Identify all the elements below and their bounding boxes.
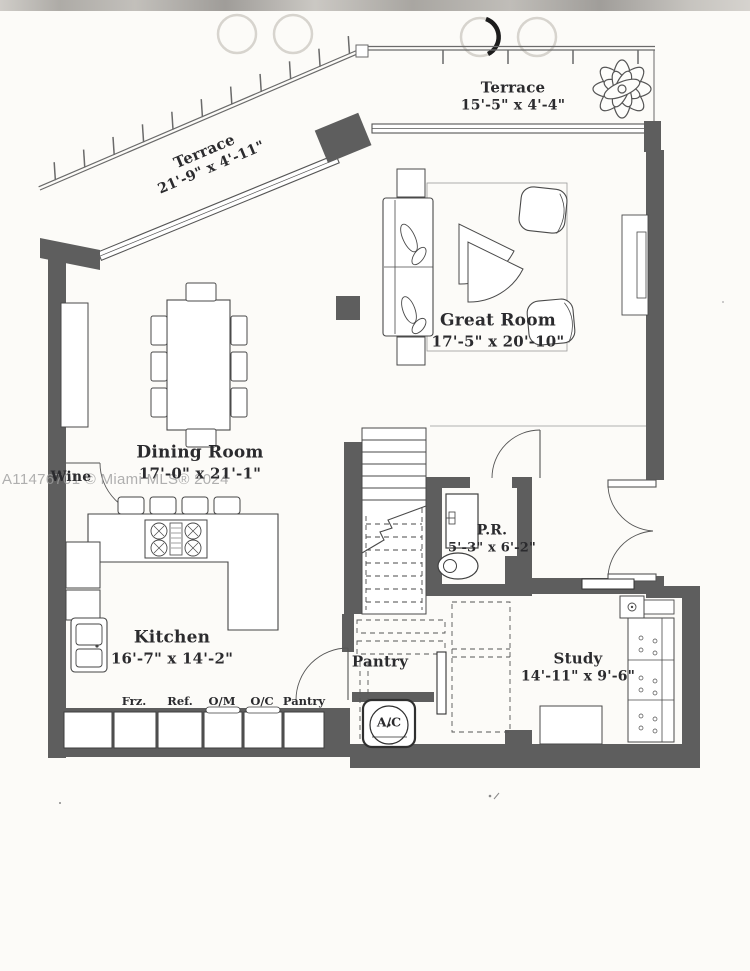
chair (151, 352, 167, 381)
wine-label: Wine (51, 469, 92, 487)
room-name: P.R. (448, 523, 536, 541)
chair (231, 388, 247, 417)
ac-label: A/C (377, 715, 401, 730)
chair (151, 388, 167, 417)
chair (186, 283, 216, 301)
window-walls (98, 124, 646, 260)
oven-microwave-label: O/M (209, 694, 236, 708)
pantry-cabinet-label: Pantry (283, 694, 325, 708)
room-name: Dining Room (136, 443, 263, 465)
staircase (362, 428, 426, 614)
room-name: Kitchen (111, 628, 233, 650)
buffet (61, 303, 88, 427)
end-table (397, 169, 425, 197)
room-dims: 17'-5" x 20'-10" (432, 332, 565, 351)
bar-stool (118, 497, 144, 514)
refrigerator-label: Ref. (167, 694, 192, 708)
room-dims: 17'-0" x 21'-1" (136, 464, 263, 483)
closet-door-leaf (437, 652, 446, 714)
oven-convection-label: O/C (250, 694, 273, 708)
great-room-label: Great Room 17'-5" x 20'-10" (432, 311, 565, 352)
end-table (397, 337, 425, 365)
chair (231, 316, 247, 345)
room-dims: 16'-7" x 14'-2" (111, 649, 233, 668)
dining-table (167, 300, 230, 430)
terrace-top-label: Terrace 15'-5" x 4'-4" (461, 78, 565, 115)
bar-stool (182, 497, 208, 514)
counter (66, 590, 100, 620)
counter (66, 542, 100, 588)
kitchen-label: Kitchen 16'-7" x 14'-2" (111, 628, 233, 669)
bar-stool (150, 497, 176, 514)
dining-room-label: Dining Room 17'-0" x 21'-1" (136, 443, 263, 484)
study-door-leaf (582, 579, 634, 589)
room-name: Great Room (432, 311, 565, 333)
pantry-label: Pantry (352, 652, 408, 671)
plant-icon (593, 60, 651, 118)
room-dims: 14'-11" x 9'-6" (521, 669, 635, 687)
room-dims: 5'-3" x 6'-2" (448, 541, 536, 558)
desk (540, 706, 602, 744)
powder-room-label: P.R. 5'-3" x 6'-2" (448, 523, 536, 558)
floorplan-page: A11476701 © Miami MLS® 2024 Terrace 15'-… (0, 0, 750, 971)
freezer-label: Frz. (122, 694, 147, 708)
room-name: Pantry (352, 652, 408, 671)
appliance-cabinets (64, 707, 324, 748)
room-name: Study (521, 649, 635, 668)
entry-door-leaf (608, 480, 656, 487)
chair (151, 316, 167, 345)
bar-stool (214, 497, 240, 514)
room-dims: 15'-5" x 4'-4" (461, 98, 565, 116)
chair (231, 352, 247, 381)
room-name: Wine (51, 469, 92, 487)
scan-artifact-band (0, 0, 750, 11)
dining-furniture (61, 283, 247, 447)
study-label: Study 14'-11" x 9'-6" (521, 649, 635, 686)
room-name: Terrace (461, 78, 565, 97)
